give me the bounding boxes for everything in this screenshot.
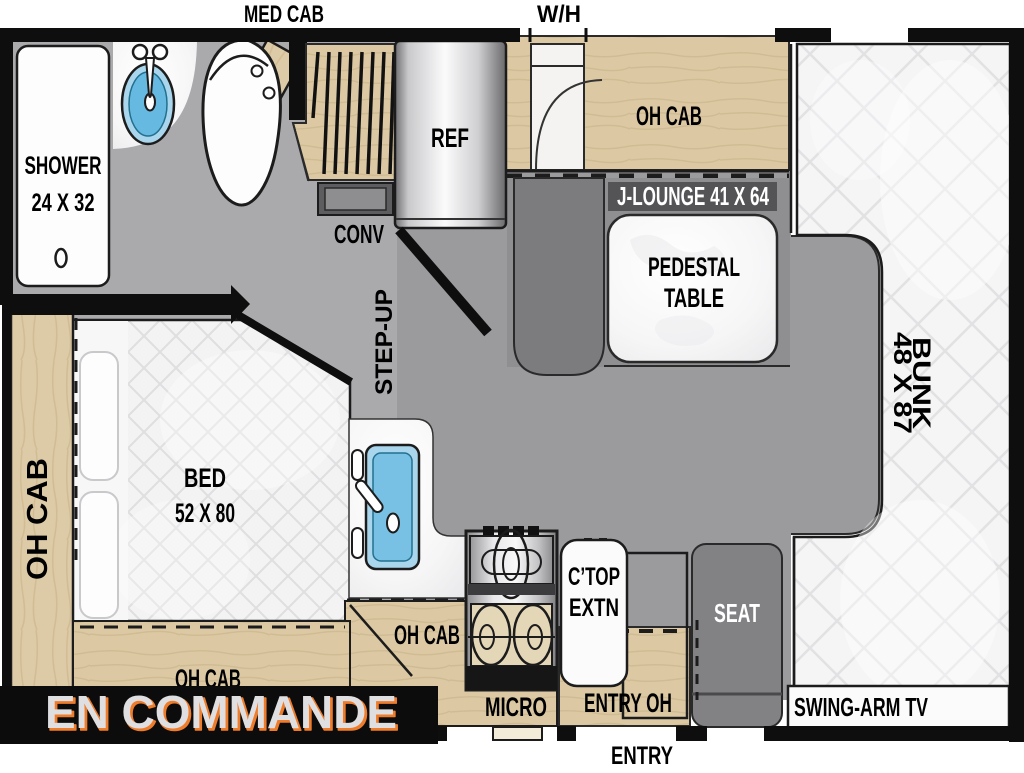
svg-text:OH CAB: OH CAB — [636, 101, 702, 131]
svg-text:PEDESTAL: PEDESTAL — [648, 252, 740, 282]
svg-text:ENTRY OH: ENTRY OH — [584, 688, 672, 718]
svg-text:OH CAB: OH CAB — [22, 458, 54, 580]
svg-text:ENTRY: ENTRY — [611, 742, 673, 768]
svg-text:48 X 87: 48 X 87 — [888, 332, 916, 434]
svg-text:MED CAB: MED CAB — [244, 1, 324, 28]
svg-text:MICRO: MICRO — [485, 692, 547, 722]
svg-text:SEAT: SEAT — [714, 598, 760, 628]
svg-text:52 X 80: 52 X 80 — [175, 498, 235, 528]
svg-text:SWING-ARM TV: SWING-ARM TV — [794, 692, 928, 722]
svg-text:C’TOP: C’TOP — [568, 563, 620, 591]
svg-text:OH CAB: OH CAB — [394, 620, 460, 650]
svg-text:STEP-UP: STEP-UP — [371, 289, 398, 395]
svg-text:J-LOUNGE 41 X 64: J-LOUNGE 41 X 64 — [617, 181, 769, 211]
svg-text:BED: BED — [184, 463, 226, 493]
svg-text:EN COMMANDE: EN COMMANDE — [45, 686, 397, 738]
svg-text:W/H: W/H — [537, 1, 581, 28]
svg-text:TABLE: TABLE — [664, 283, 724, 313]
svg-text:SHOWER: SHOWER — [25, 152, 102, 180]
svg-text:EXTN: EXTN — [569, 594, 619, 622]
svg-text:24 X 32: 24 X 32 — [32, 189, 95, 217]
svg-text:REF: REF — [431, 123, 469, 153]
svg-text:CONV: CONV — [334, 219, 384, 249]
